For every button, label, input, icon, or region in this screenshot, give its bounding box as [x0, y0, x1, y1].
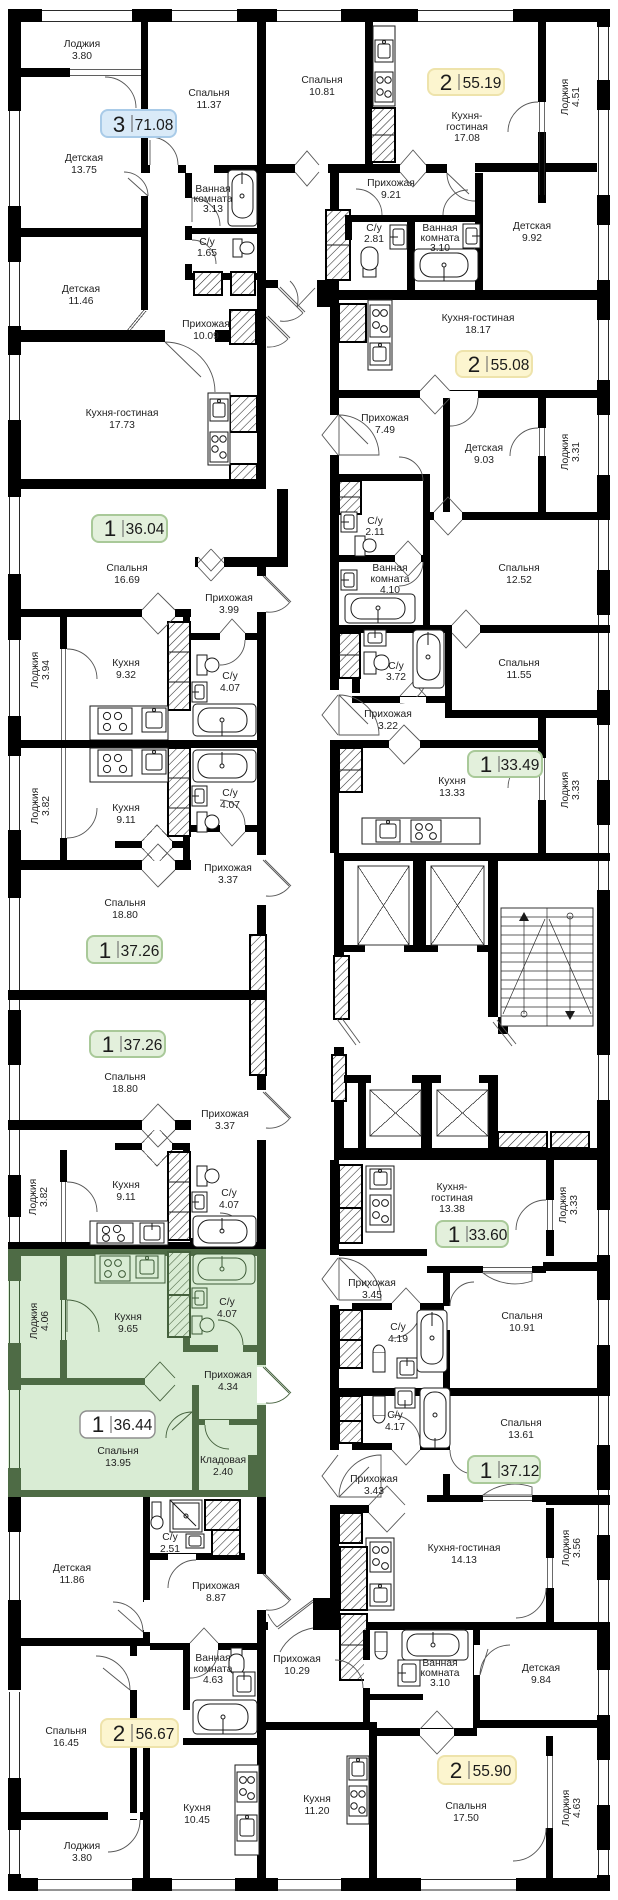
- svg-text:Кухня: Кухня: [183, 1803, 211, 1814]
- svg-text:3.56: 3.56: [572, 1538, 583, 1558]
- svg-text:Детская: Детская: [62, 284, 100, 295]
- svg-text:4.19: 4.19: [388, 1334, 408, 1345]
- svg-text:Прихожая: Прихожая: [367, 178, 415, 189]
- svg-text:1: 1: [480, 1458, 493, 1483]
- svg-text:4.17: 4.17: [385, 1422, 405, 1433]
- svg-text:12.52: 12.52: [506, 575, 532, 586]
- svg-text:С/у: С/у: [387, 1410, 403, 1421]
- svg-text:Кухня: Кухня: [114, 1312, 142, 1323]
- svg-text:Лоджия: Лоджия: [30, 652, 41, 688]
- svg-text:Прихожая: Прихожая: [273, 1654, 321, 1665]
- svg-text:9.32: 9.32: [116, 670, 136, 681]
- svg-text:Детская: Детская: [465, 443, 503, 454]
- svg-text:18.80: 18.80: [112, 1084, 138, 1095]
- svg-text:Детская: Детская: [522, 1663, 560, 1674]
- svg-text:2.40: 2.40: [213, 1467, 233, 1478]
- svg-text:Прихожая: Прихожая: [364, 709, 412, 720]
- svg-text:Спальня: Спальня: [500, 1418, 541, 1429]
- svg-text:комната: комната: [194, 1664, 233, 1675]
- svg-text:Спальня: Спальня: [106, 563, 147, 574]
- svg-text:1: 1: [104, 516, 117, 541]
- svg-text:Лоджия: Лоджия: [561, 1530, 572, 1566]
- svg-text:9.21: 9.21: [381, 190, 401, 201]
- svg-text:Детская: Детская: [513, 221, 551, 232]
- svg-text:1: 1: [99, 938, 112, 963]
- svg-text:3.33: 3.33: [569, 1195, 580, 1215]
- svg-text:1: 1: [102, 1032, 115, 1057]
- svg-text:гостиная: гостиная: [431, 1193, 473, 1204]
- svg-text:37.12: 37.12: [501, 1463, 540, 1480]
- svg-text:3.33: 3.33: [571, 780, 582, 800]
- svg-text:4.63: 4.63: [203, 1675, 223, 1686]
- svg-text:2.51: 2.51: [160, 1544, 180, 1555]
- svg-text:11.55: 11.55: [506, 670, 531, 681]
- svg-text:11.37: 11.37: [196, 100, 221, 111]
- svg-text:2.81: 2.81: [364, 234, 384, 245]
- svg-text:С/у: С/у: [162, 1532, 178, 1543]
- svg-text:Детская: Детская: [53, 1563, 91, 1574]
- svg-text:3.94: 3.94: [41, 660, 52, 680]
- svg-text:10.09: 10.09: [193, 331, 219, 342]
- svg-text:4.07: 4.07: [220, 683, 240, 694]
- svg-text:71.08: 71.08: [135, 117, 174, 134]
- svg-text:4.07: 4.07: [219, 1200, 239, 1211]
- svg-text:2.11: 2.11: [365, 527, 385, 538]
- svg-text:Спальня: Спальня: [301, 75, 342, 86]
- svg-text:С/у: С/у: [221, 1188, 237, 1199]
- svg-text:Кухня-: Кухня-: [452, 111, 483, 122]
- svg-text:Спальня: Спальня: [97, 1446, 138, 1457]
- svg-text:18.80: 18.80: [112, 910, 138, 921]
- svg-text:Кухня: Кухня: [303, 1794, 331, 1805]
- svg-text:2: 2: [440, 70, 453, 95]
- svg-text:Спальня: Спальня: [188, 88, 229, 99]
- svg-text:33.60: 33.60: [469, 1227, 508, 1244]
- svg-text:С/у: С/у: [366, 223, 382, 234]
- svg-text:Прихожая: Прихожая: [204, 863, 252, 874]
- svg-text:55.19: 55.19: [463, 75, 502, 92]
- svg-text:Лоджия: Лоджия: [29, 1303, 40, 1339]
- svg-text:3.13: 3.13: [203, 204, 223, 215]
- svg-text:Кухня-гостиная: Кухня-гостиная: [428, 1543, 501, 1554]
- svg-text:4.07: 4.07: [220, 800, 240, 811]
- svg-text:1: 1: [448, 1222, 461, 1247]
- svg-text:3.99: 3.99: [219, 605, 239, 616]
- svg-text:Прихожая: Прихожая: [192, 1581, 240, 1592]
- svg-text:3.43: 3.43: [364, 1486, 384, 1497]
- svg-text:13.38: 13.38: [439, 1204, 465, 1215]
- svg-text:Лоджия: Лоджия: [28, 1179, 39, 1215]
- svg-text:9.65: 9.65: [118, 1324, 138, 1335]
- svg-text:1: 1: [480, 752, 493, 777]
- svg-text:9.11: 9.11: [116, 815, 136, 826]
- svg-text:Прихожая: Прихожая: [348, 1278, 396, 1289]
- svg-text:гостиная: гостиная: [446, 122, 488, 133]
- svg-text:Ванная: Ванная: [195, 1653, 230, 1664]
- svg-text:3.10: 3.10: [430, 243, 450, 254]
- svg-text:Спальня: Спальня: [498, 658, 539, 669]
- svg-text:14.13: 14.13: [451, 1555, 477, 1566]
- svg-text:Лоджия: Лоджия: [64, 1841, 100, 1852]
- svg-text:Прихожая: Прихожая: [182, 319, 230, 330]
- svg-text:3.82: 3.82: [39, 1187, 50, 1207]
- svg-text:2: 2: [468, 352, 481, 377]
- svg-text:3.37: 3.37: [218, 875, 238, 886]
- svg-text:11.20: 11.20: [304, 1806, 329, 1817]
- svg-text:С/у: С/у: [367, 516, 383, 527]
- svg-text:13.95: 13.95: [105, 1458, 131, 1469]
- svg-text:Спальня: Спальня: [45, 1726, 86, 1737]
- svg-text:Спальня: Спальня: [501, 1311, 542, 1322]
- svg-text:Лоджия: Лоджия: [558, 1187, 569, 1223]
- svg-text:С/у: С/у: [219, 1297, 235, 1308]
- svg-text:3.10: 3.10: [430, 1678, 450, 1689]
- svg-text:3.80: 3.80: [72, 51, 92, 62]
- svg-text:9.92: 9.92: [522, 233, 542, 244]
- svg-text:комната: комната: [371, 574, 410, 585]
- svg-text:56.67: 56.67: [136, 1726, 175, 1743]
- svg-text:1: 1: [92, 1412, 105, 1437]
- svg-text:С/у: С/у: [199, 237, 215, 248]
- svg-text:Ванная: Ванная: [372, 563, 407, 574]
- svg-text:17.73: 17.73: [109, 420, 135, 431]
- svg-text:3.22: 3.22: [378, 721, 398, 732]
- svg-text:36.04: 36.04: [126, 521, 165, 538]
- svg-text:Прихожая: Прихожая: [205, 593, 253, 604]
- svg-text:16.45: 16.45: [53, 1738, 79, 1749]
- svg-text:Кухня-гостиная: Кухня-гостиная: [442, 313, 515, 324]
- svg-text:18.17: 18.17: [465, 325, 491, 336]
- svg-text:11.46: 11.46: [68, 296, 93, 307]
- svg-text:10.81: 10.81: [309, 87, 335, 98]
- svg-text:С/у: С/у: [390, 1322, 406, 1333]
- svg-text:10.91: 10.91: [509, 1323, 535, 1334]
- svg-text:Кухня: Кухня: [112, 658, 140, 669]
- svg-text:Кухня: Кухня: [112, 1180, 140, 1191]
- svg-text:4.06: 4.06: [40, 1311, 51, 1331]
- svg-text:11.86: 11.86: [59, 1575, 84, 1586]
- svg-text:4.63: 4.63: [572, 1798, 583, 1818]
- svg-text:16.69: 16.69: [114, 575, 140, 586]
- svg-text:2: 2: [113, 1721, 126, 1746]
- svg-text:9.11: 9.11: [116, 1192, 136, 1203]
- svg-text:Лоджия: Лоджия: [561, 1790, 572, 1826]
- svg-text:Лоджия: Лоджия: [64, 39, 100, 50]
- svg-text:Прихожая: Прихожая: [350, 1474, 398, 1485]
- svg-text:3.82: 3.82: [41, 796, 52, 816]
- svg-text:33.49: 33.49: [501, 757, 540, 774]
- svg-text:Лоджия: Лоджия: [30, 788, 41, 824]
- svg-text:С/у: С/у: [388, 661, 404, 672]
- svg-text:4.34: 4.34: [218, 1382, 238, 1393]
- svg-text:Лоджия: Лоджия: [560, 434, 571, 470]
- svg-text:Кухня-гостиная: Кухня-гостиная: [86, 408, 159, 419]
- svg-text:Прихожая: Прихожая: [361, 413, 409, 424]
- svg-text:Спальня: Спальня: [104, 1072, 145, 1083]
- svg-text:55.90: 55.90: [473, 1763, 512, 1780]
- svg-text:13.33: 13.33: [439, 788, 465, 799]
- svg-text:17.50: 17.50: [453, 1813, 479, 1824]
- svg-text:4.51: 4.51: [571, 87, 582, 107]
- svg-text:Кладовая: Кладовая: [200, 1455, 246, 1466]
- svg-text:17.08: 17.08: [454, 133, 480, 144]
- svg-text:Спальня: Спальня: [445, 1801, 486, 1812]
- svg-text:Прихожая: Прихожая: [201, 1109, 249, 1120]
- svg-text:9.84: 9.84: [531, 1675, 551, 1686]
- svg-text:Кухня-: Кухня-: [437, 1182, 468, 1193]
- svg-text:3.31: 3.31: [571, 442, 582, 462]
- svg-text:Детская: Детская: [65, 153, 103, 164]
- svg-text:С/у: С/у: [222, 671, 238, 682]
- svg-text:3: 3: [113, 112, 126, 137]
- svg-text:55.08: 55.08: [491, 357, 530, 374]
- svg-text:4.10: 4.10: [380, 585, 400, 596]
- svg-text:Прихожая: Прихожая: [204, 1370, 252, 1381]
- svg-text:9.03: 9.03: [474, 455, 494, 466]
- svg-text:2: 2: [450, 1758, 463, 1783]
- svg-text:8.87: 8.87: [206, 1593, 226, 1604]
- svg-text:7.49: 7.49: [375, 425, 395, 436]
- svg-text:3.45: 3.45: [362, 1290, 382, 1301]
- svg-text:Спальня: Спальня: [498, 563, 539, 574]
- svg-text:4.07: 4.07: [217, 1309, 237, 1320]
- svg-text:3.72: 3.72: [386, 672, 406, 683]
- svg-text:Спальня: Спальня: [104, 898, 145, 909]
- svg-text:37.26: 37.26: [124, 1037, 163, 1054]
- svg-text:3.80: 3.80: [72, 1853, 92, 1864]
- svg-text:С/у: С/у: [222, 788, 238, 799]
- svg-text:13.75: 13.75: [71, 165, 97, 176]
- svg-text:13.61: 13.61: [508, 1430, 534, 1441]
- svg-text:Кухня: Кухня: [438, 776, 466, 787]
- svg-text:10.29: 10.29: [284, 1666, 310, 1677]
- svg-text:Лоджия: Лоджия: [560, 79, 571, 115]
- svg-text:3.37: 3.37: [215, 1121, 235, 1132]
- svg-text:1.65: 1.65: [197, 248, 217, 259]
- svg-text:36.44: 36.44: [114, 1417, 153, 1434]
- svg-text:Лоджия: Лоджия: [560, 772, 571, 808]
- svg-text:Кухня: Кухня: [112, 803, 140, 814]
- svg-text:10.45: 10.45: [184, 1815, 210, 1826]
- svg-text:37.26: 37.26: [121, 943, 160, 960]
